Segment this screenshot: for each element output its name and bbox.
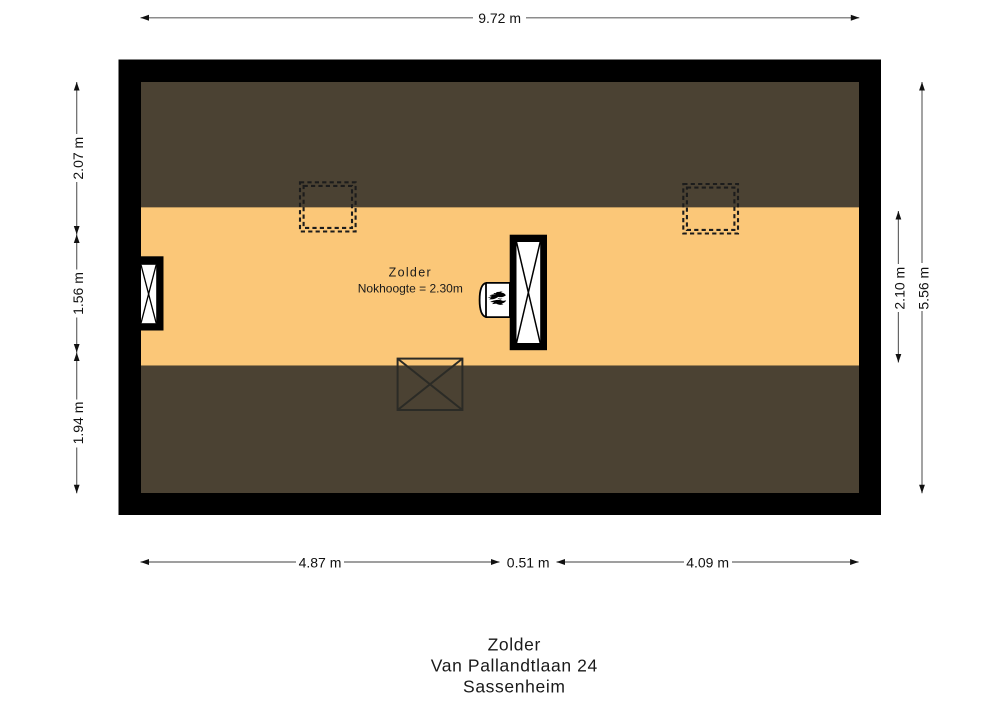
svg-text:9.72 m: 9.72 m xyxy=(478,10,521,26)
svg-text:Zolder: Zolder xyxy=(389,265,432,279)
svg-text:5.56 m: 5.56 m xyxy=(916,267,932,310)
svg-text:0.51 m: 0.51 m xyxy=(507,554,550,570)
svg-text:4.87 m: 4.87 m xyxy=(299,554,342,570)
svg-text:2.07 m: 2.07 m xyxy=(70,137,86,180)
svg-text:Sassenheim: Sassenheim xyxy=(463,676,566,696)
svg-text:4.09 m: 4.09 m xyxy=(686,554,729,570)
svg-text:1.94 m: 1.94 m xyxy=(70,402,86,445)
svg-text:2.10 m: 2.10 m xyxy=(892,267,908,310)
svg-text:Nokhoogte = 2.30m: Nokhoogte = 2.30m xyxy=(358,281,463,295)
svg-text:Van Pallandtlaan 24: Van Pallandtlaan 24 xyxy=(431,655,598,675)
svg-text:Zolder: Zolder xyxy=(488,634,541,654)
svg-text:1.56 m: 1.56 m xyxy=(70,272,86,315)
